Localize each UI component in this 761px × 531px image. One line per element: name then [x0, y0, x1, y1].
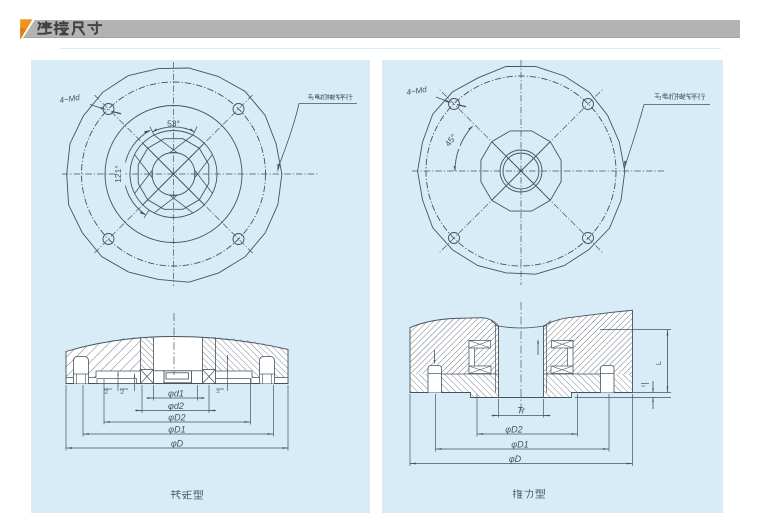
svg-text:φd2: φd2 — [168, 401, 184, 411]
svg-text:4~Md: 4~Md — [59, 93, 81, 105]
svg-text:L: L — [654, 361, 663, 365]
svg-text:4~Md: 4~Md — [406, 85, 428, 97]
svg-text:φD: φD — [171, 439, 184, 449]
svg-text:t: t — [641, 385, 647, 387]
svg-text:φD: φD — [509, 454, 522, 464]
svg-text:h2: h2 — [120, 389, 126, 395]
svg-text:h1: h1 — [104, 389, 110, 395]
svg-text:Tr: Tr — [517, 405, 526, 415]
svg-text:φD1: φD1 — [168, 425, 185, 435]
svg-text:φd1: φd1 — [168, 389, 184, 399]
svg-text:53°: 53° — [167, 119, 180, 129]
svg-text:φD1: φD1 — [511, 440, 528, 450]
svg-text:h: h — [216, 390, 222, 393]
svg-text:φD2: φD2 — [168, 413, 185, 423]
svg-text:φD2: φD2 — [505, 425, 522, 435]
svg-text:121°: 121° — [113, 165, 123, 183]
